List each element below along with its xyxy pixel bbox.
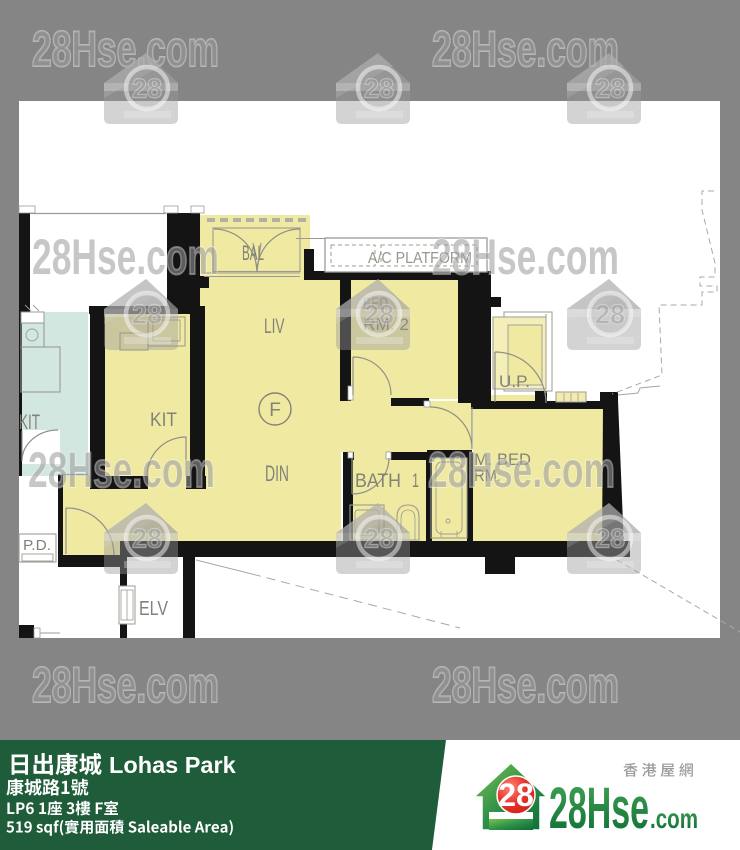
- svg-text:Lohas Park: Lohas Park: [109, 752, 237, 778]
- svg-text:28Hse.com: 28Hse.com: [32, 657, 219, 713]
- svg-text:28: 28: [498, 777, 534, 813]
- svg-text:28Hse.com: 28Hse.com: [432, 657, 619, 713]
- svg-text:U.P.: U.P.: [499, 372, 530, 391]
- svg-text:ELV: ELV: [139, 598, 169, 620]
- svg-text:KIT: KIT: [150, 409, 177, 431]
- svg-text:28Hse: 28Hse: [549, 776, 649, 841]
- svg-text:LIV: LIV: [264, 315, 285, 338]
- svg-text:P.D.: P.D.: [23, 537, 51, 554]
- svg-text:BAL: BAL: [242, 242, 264, 265]
- svg-text:KIT: KIT: [19, 411, 40, 434]
- svg-text:.com: .com: [650, 803, 698, 834]
- svg-text:BATH: BATH: [355, 471, 401, 492]
- svg-text:1: 1: [412, 471, 419, 492]
- svg-text:28Hse.com: 28Hse.com: [32, 229, 219, 285]
- svg-text:F: F: [269, 400, 281, 421]
- svg-text:28Hse.com: 28Hse.com: [28, 442, 215, 498]
- svg-text:28Hse.com: 28Hse.com: [428, 442, 615, 498]
- svg-text:DIN: DIN: [265, 461, 289, 486]
- svg-text:28Hse.com: 28Hse.com: [432, 229, 619, 285]
